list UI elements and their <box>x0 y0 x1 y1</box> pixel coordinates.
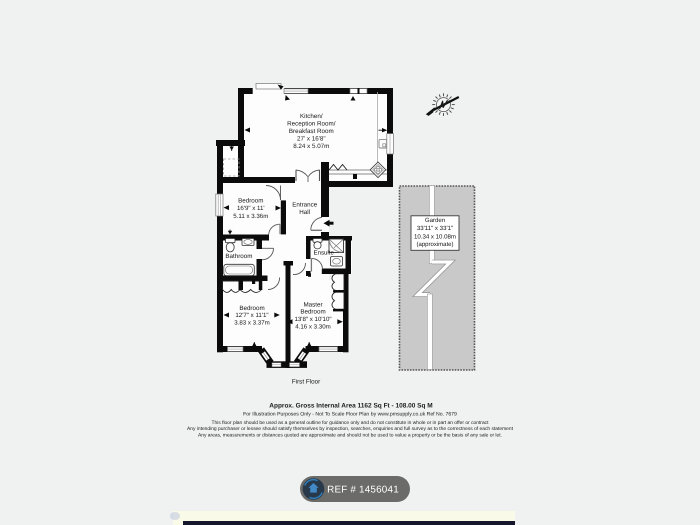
svg-text:Bedroom: Bedroom <box>238 198 263 205</box>
svg-text:13'8" x 10'10": 13'8" x 10'10" <box>294 316 331 323</box>
svg-text:Any intending purchaser or les: Any intending purchaser or lessee should… <box>187 426 514 432</box>
svg-text:First Floor: First Floor <box>292 378 320 385</box>
svg-text:Kitchen/: Kitchen/ <box>300 113 323 120</box>
svg-text:Hall: Hall <box>299 209 310 216</box>
svg-text:Garden: Garden <box>425 217 445 224</box>
svg-text:Bedroom: Bedroom <box>300 309 325 316</box>
svg-text:27' x 16'8": 27' x 16'8" <box>297 136 326 143</box>
svg-text:Entrance: Entrance <box>292 201 318 208</box>
svg-text:8.24 x 5.07m: 8.24 x 5.07m <box>293 143 329 150</box>
svg-text:4.16 x 3.30m: 4.16 x 3.30m <box>295 324 331 331</box>
svg-text:Ensuite: Ensuite <box>314 249 335 256</box>
svg-text:This floor plan should be used: This floor plan should be used as a gene… <box>212 420 490 426</box>
svg-text:10.34 x 10.08m: 10.34 x 10.08m <box>414 233 456 240</box>
svg-text:33'11" x 33'1": 33'11" x 33'1" <box>417 225 453 232</box>
svg-text:For Illustration Purposes Only: For Illustration Purposes Only - Not To … <box>243 412 457 418</box>
svg-text:Reception Room/: Reception Room/ <box>287 120 336 127</box>
svg-text:Bathroom: Bathroom <box>225 253 252 260</box>
svg-text:Any areas, measurements or dis: Any areas, measurements or distances quo… <box>198 433 502 439</box>
svg-text:Breakfast Room: Breakfast Room <box>289 128 334 135</box>
svg-text:Approx. Gross Internal Area 1: Approx. Gross Internal Area 1162 Sq Ft -… <box>269 403 432 410</box>
svg-text:16'9" x 11': 16'9" x 11' <box>237 205 265 212</box>
svg-text:Master: Master <box>303 301 322 308</box>
svg-text:3.83 x 3.37m: 3.83 x 3.37m <box>234 320 270 327</box>
svg-text:12'7" x 11'1": 12'7" x 11'1" <box>235 312 268 319</box>
svg-text:Bedroom: Bedroom <box>239 305 264 312</box>
svg-text:(approximate): (approximate) <box>416 241 453 248</box>
svg-text:5.11 x 3.36m: 5.11 x 3.36m <box>233 213 268 220</box>
svg-text:REF # 1456041: REF # 1456041 <box>327 485 399 496</box>
